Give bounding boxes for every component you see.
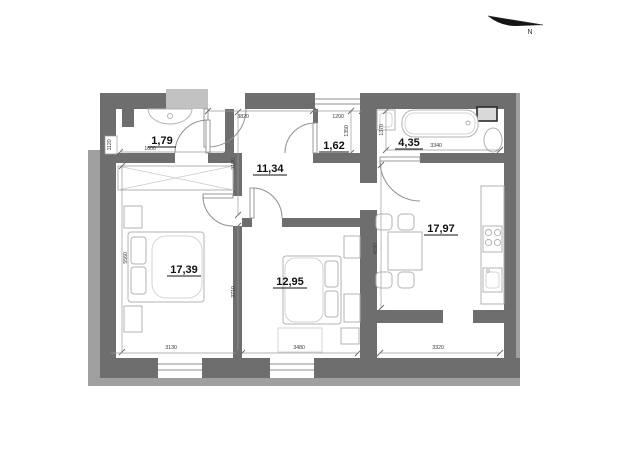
burner bbox=[494, 229, 500, 235]
wc-sink-drain bbox=[168, 114, 173, 119]
chair bbox=[398, 214, 414, 230]
closet-door-arc bbox=[285, 123, 315, 153]
wc-door-leaf bbox=[206, 120, 210, 153]
wall-balcony-north-left bbox=[360, 310, 443, 323]
bedroom-second-door-leaf bbox=[250, 188, 254, 218]
opening-bedroom-second-door bbox=[252, 218, 282, 227]
bathtub-drain bbox=[466, 121, 470, 125]
room-label-bedroom-main: 17,39 bbox=[170, 264, 198, 276]
closet-door-leaf bbox=[313, 123, 317, 153]
dining-table bbox=[388, 232, 422, 270]
wall-spine-upper bbox=[360, 93, 377, 183]
dim-bedroom-main-width: 3130 bbox=[165, 345, 177, 351]
burner bbox=[485, 239, 491, 245]
bathroom-door-arc bbox=[380, 161, 420, 201]
dim-bedroom-main-height: 5560 bbox=[123, 252, 129, 264]
dim-hallway-depth: 3190 bbox=[231, 158, 237, 170]
vent-shaft bbox=[477, 107, 497, 121]
wc-door-arc bbox=[175, 120, 208, 153]
dim-bathroom-depth: 1370 bbox=[379, 124, 385, 136]
nightstand bbox=[344, 294, 360, 322]
dim-bedroom-second-depth: 3710 bbox=[231, 286, 237, 298]
burner bbox=[485, 229, 491, 235]
opening-bedroom-main-door bbox=[233, 196, 242, 226]
dim-kitchen-depth: 4190 bbox=[373, 243, 379, 255]
nightstand bbox=[124, 206, 142, 228]
entrance-landing bbox=[166, 89, 208, 109]
burner bbox=[494, 239, 500, 245]
floor-plan-canvas: 3820 1200 1350 1370 3340 3190 3710 5560 … bbox=[0, 0, 620, 460]
bedroom-second-door-arc bbox=[252, 188, 282, 218]
wall-closet-south bbox=[313, 153, 362, 163]
opening-wc-door bbox=[175, 153, 208, 163]
edge-strip-left bbox=[88, 150, 100, 386]
edge-strip-bottom bbox=[100, 378, 520, 386]
floor-plan-drawing: 3820 1200 1350 1370 3340 3190 3710 5560 … bbox=[0, 0, 620, 460]
wall-wc-pier bbox=[122, 109, 134, 127]
pillow bbox=[325, 261, 338, 287]
nightstand bbox=[124, 306, 142, 332]
pillow bbox=[131, 237, 146, 264]
room-label-closet: 1,62 bbox=[323, 140, 344, 152]
wall-bathroom-south bbox=[420, 153, 504, 163]
north-label: N bbox=[527, 29, 532, 36]
bathroom-door-leaf bbox=[380, 157, 420, 161]
dim-wc-depth: 1120 bbox=[107, 139, 113, 150]
dim-bathroom-width: 3340 bbox=[430, 143, 442, 149]
dim-balcony-width: 3320 bbox=[432, 345, 444, 351]
chair bbox=[376, 272, 392, 288]
room-label-wc: 1,79 bbox=[151, 135, 172, 147]
wall-top-mid bbox=[245, 93, 315, 109]
room-label-hallway: 11,34 bbox=[257, 163, 285, 175]
wall-balcony-north-right bbox=[473, 310, 504, 323]
dim-closet-depth: 1350 bbox=[344, 125, 350, 137]
chair bbox=[376, 214, 392, 230]
nightstand bbox=[344, 236, 360, 258]
kitchen-faucet bbox=[487, 270, 490, 273]
bedroom-main-door-leaf bbox=[203, 194, 233, 198]
window-bedroom-main bbox=[158, 358, 202, 378]
dim-entry-top: 3820 bbox=[237, 114, 249, 120]
pillow bbox=[131, 267, 146, 294]
bedroom-main-door-arc bbox=[203, 196, 233, 226]
wall-wc-east bbox=[225, 109, 234, 153]
room-label-bathroom: 4,35 bbox=[398, 137, 419, 149]
room-label-kitchen-living: 17,97 bbox=[427, 223, 455, 235]
bathroom-sink bbox=[484, 128, 502, 152]
wall-spine-lower bbox=[360, 210, 377, 358]
wall-right bbox=[504, 93, 516, 378]
chair bbox=[398, 272, 414, 288]
dresser bbox=[341, 328, 359, 344]
dim-bedroom-second-width: 3480 bbox=[293, 345, 305, 351]
room-label-bedroom-second: 12,95 bbox=[276, 276, 304, 288]
dim-closet-top: 1200 bbox=[332, 114, 344, 120]
window-bedroom-second bbox=[270, 358, 314, 378]
wall-bedroom-main-east bbox=[233, 153, 242, 358]
pillow bbox=[325, 291, 338, 317]
north-arrow: N bbox=[488, 16, 543, 36]
